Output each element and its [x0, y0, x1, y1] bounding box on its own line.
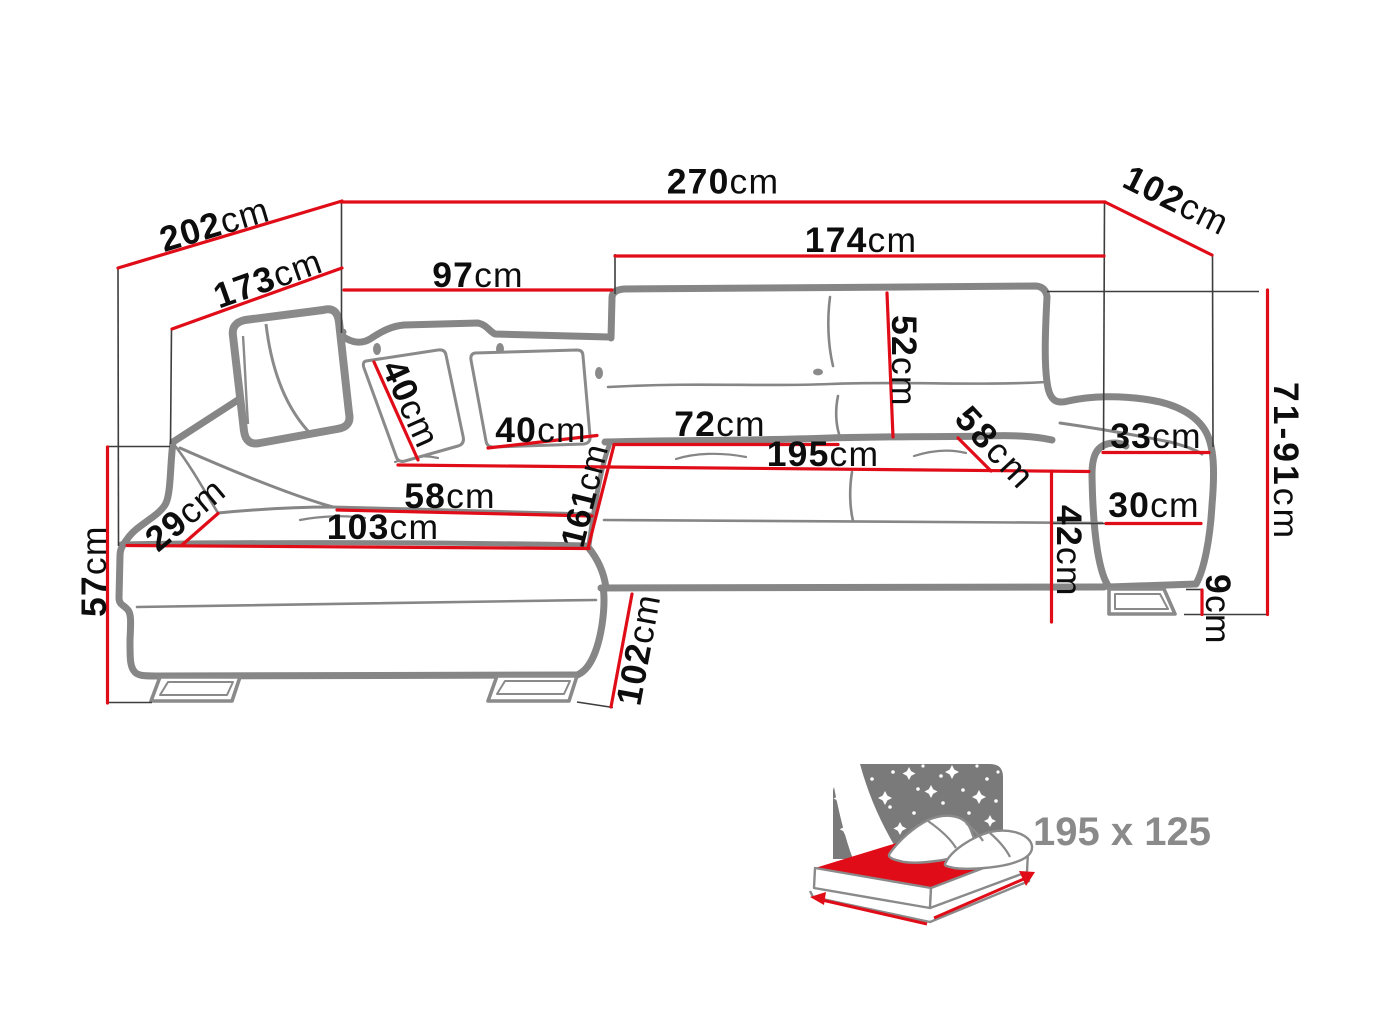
svg-text:30cm: 30cm	[1108, 485, 1200, 525]
svg-text:103cm: 103cm	[327, 507, 440, 547]
svg-text:57cm: 57cm	[74, 525, 114, 617]
svg-text:270cm: 270cm	[667, 162, 780, 202]
svg-text:97cm: 97cm	[432, 255, 524, 295]
svg-text:195 x 125: 195 x 125	[1033, 810, 1211, 854]
svg-text:52cm: 52cm	[884, 315, 924, 407]
svg-text:9cm: 9cm	[1198, 574, 1238, 645]
svg-text:195cm: 195cm	[767, 434, 880, 474]
svg-text:72cm: 72cm	[674, 404, 766, 444]
svg-text:42cm: 42cm	[1049, 505, 1089, 597]
svg-text:71-91cm: 71-91cm	[1266, 382, 1306, 541]
svg-text:33cm: 33cm	[1110, 416, 1202, 456]
svg-text:40cm: 40cm	[495, 410, 587, 450]
svg-text:174cm: 174cm	[805, 220, 918, 260]
